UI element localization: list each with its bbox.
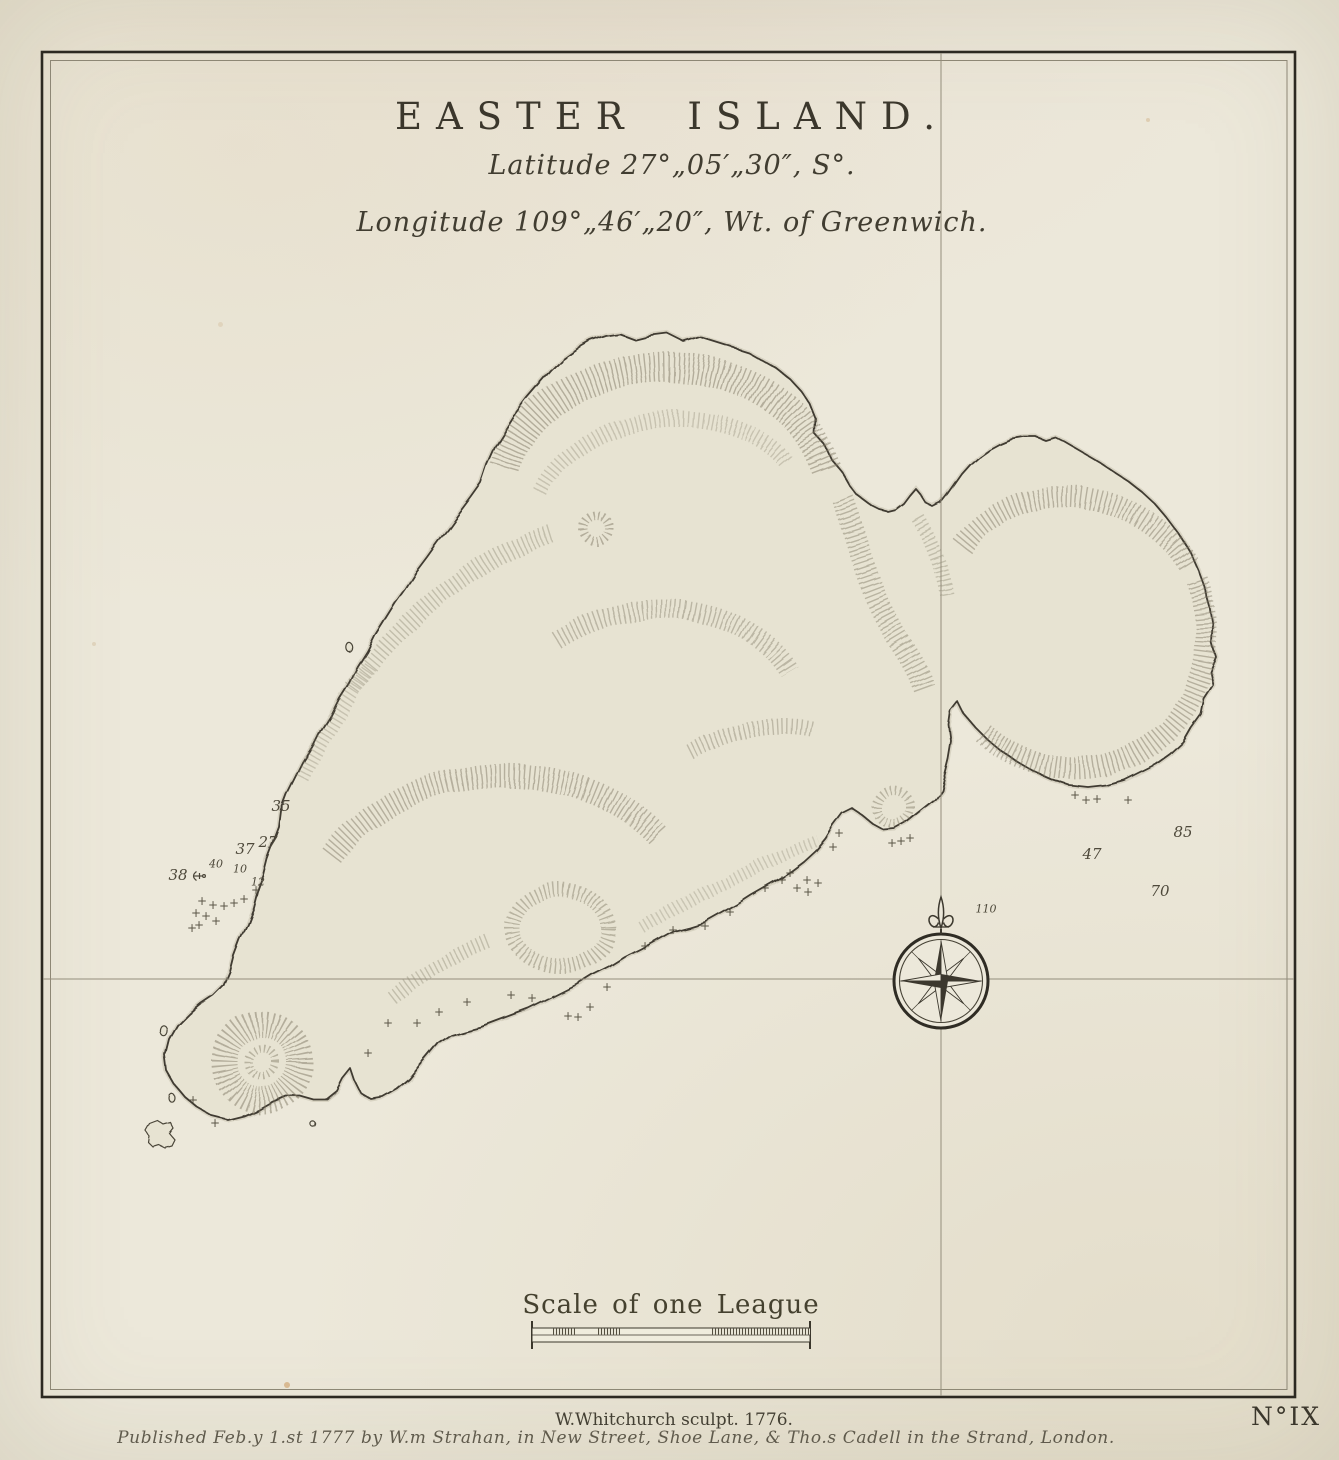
depth-sounding: 12 [251,876,265,889]
depth-sounding: 70 [1150,882,1169,900]
engraver-credit: W.Whitchurch sculpt. 1776. [555,1410,793,1430]
depth-sounding: 110 [976,903,997,916]
depth-sounding: 37 [235,840,254,858]
depth-sounding: 38 [168,866,187,884]
depth-sounding: 40 [209,858,223,871]
depth-sounding: 85 [1173,823,1192,841]
latitude-label: Latitude 27°„05′„30″, S°. [488,150,855,181]
depth-sounding: 35 [271,797,290,815]
publication-line: Published Feb.y 1.st 1777 by W.m Strahan… [117,1428,1115,1448]
longitude-label: Longitude 109°„46′„20″, Wt. of Greenwich… [357,207,988,238]
depth-sounding: 10 [233,863,247,876]
chart-sheet: ++++++++++++++++++++++++++++++++++++++++… [0,0,1339,1460]
sheet-number: N°IX [1251,1402,1321,1431]
map-title: EASTER ISLAND. [395,95,949,138]
depth-sounding: 47 [1082,845,1101,863]
scale-bar-label: Scale of one League [522,1290,819,1320]
depth-sounding: 27 [258,833,277,851]
